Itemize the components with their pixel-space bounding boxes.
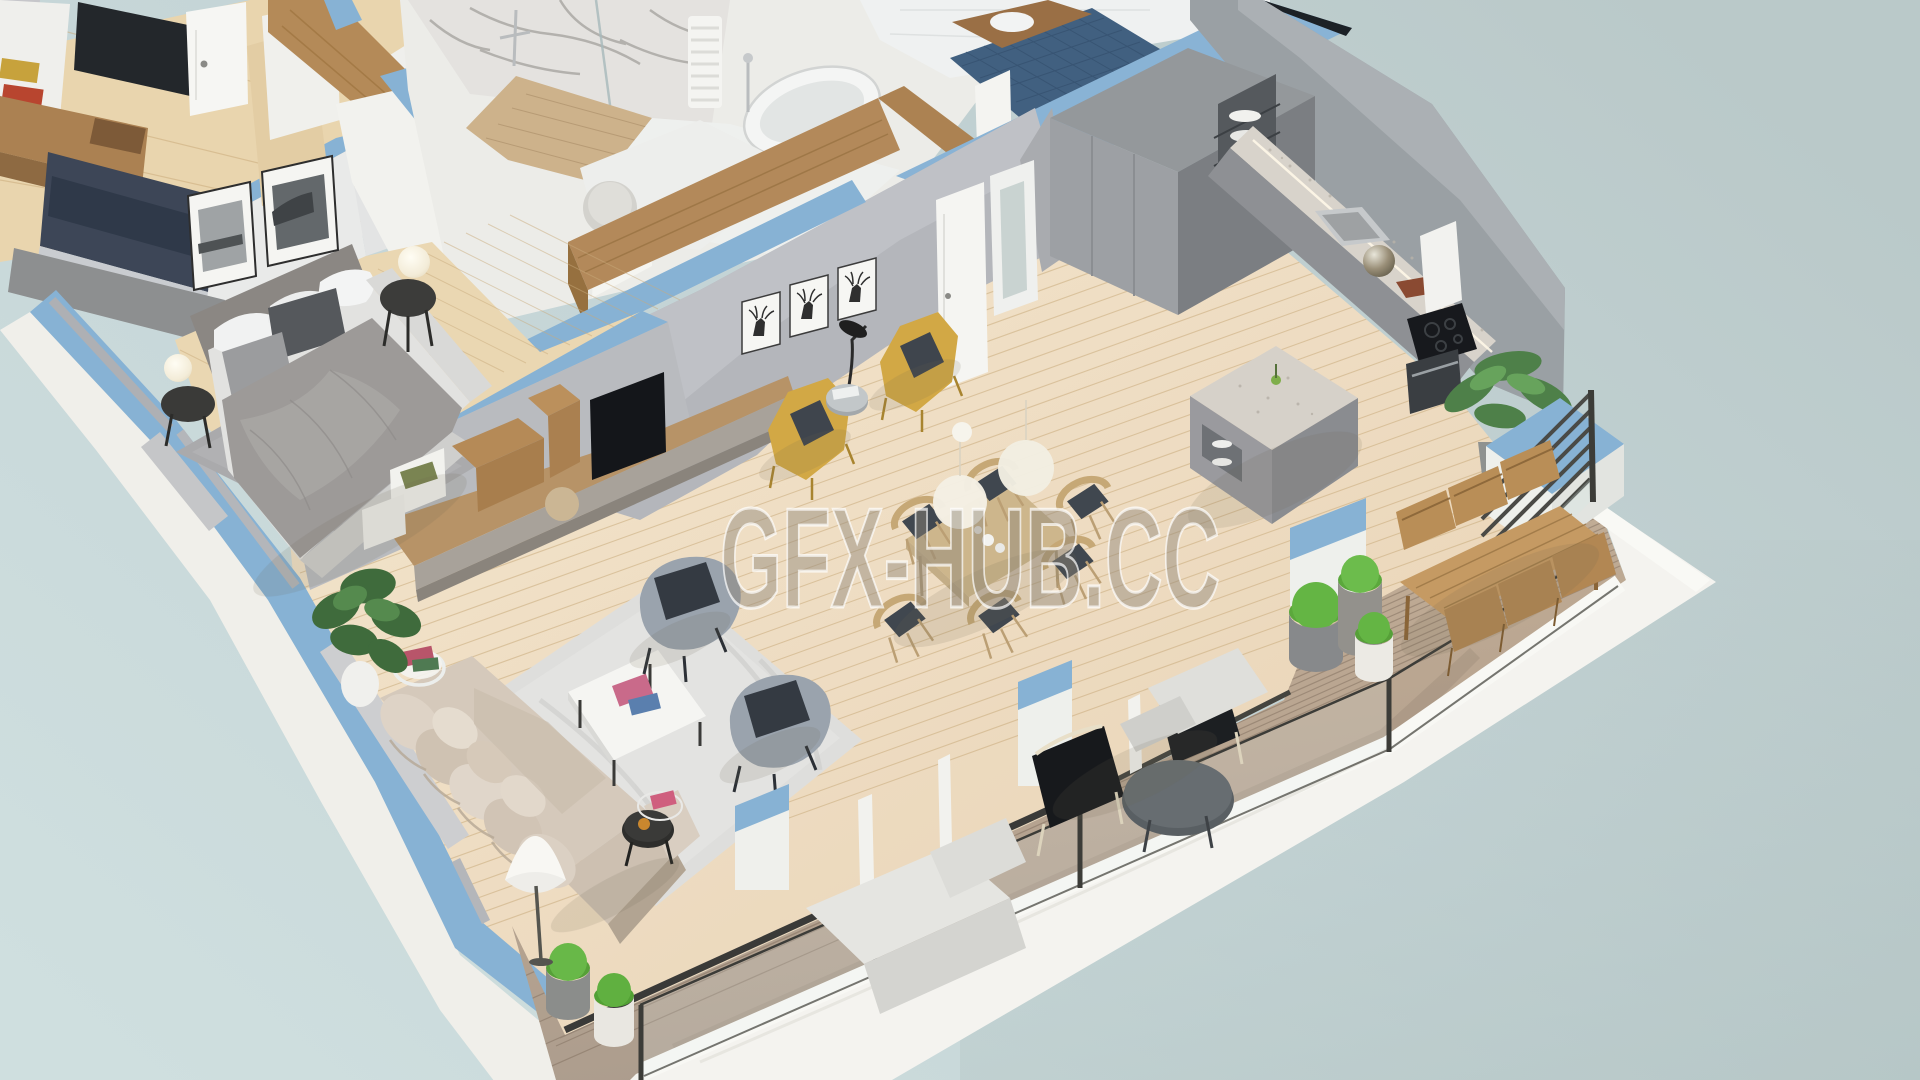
svg-text:GFX-HUB.CC: GFX-HUB.CC — [720, 479, 1220, 638]
